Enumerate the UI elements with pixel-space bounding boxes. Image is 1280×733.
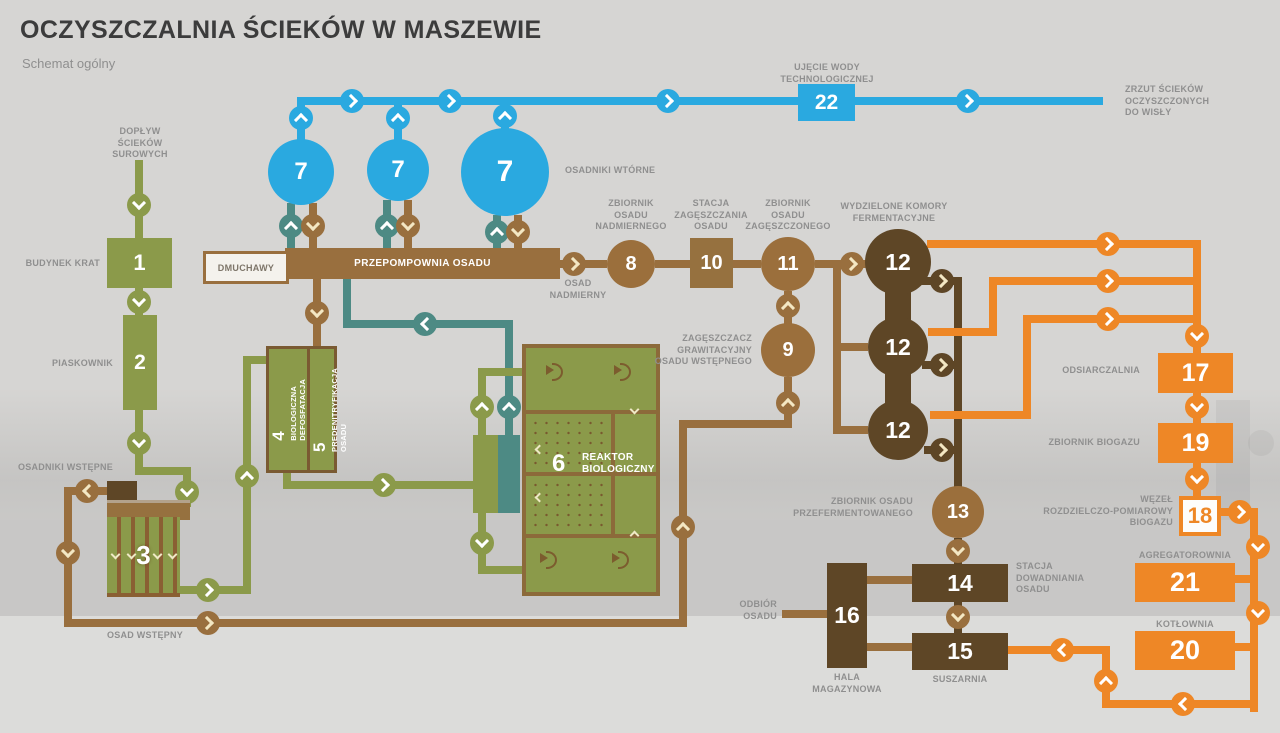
page-title: OCZYSZCZALNIA ŚCIEKÓW W MASZEWIE: [20, 16, 542, 45]
chevron-down-icon: [56, 541, 80, 565]
chevron-left-icon: [532, 443, 544, 455]
chevron-up-icon: [289, 106, 313, 130]
chevron-down-icon: [1246, 601, 1270, 625]
node-osadnik-wtorny-1: 7: [268, 139, 334, 205]
label-osadniki-wtorne: OSADNIKI WTÓRNE: [565, 165, 715, 177]
chevron-down-icon: [946, 605, 970, 629]
chevron-up-icon: [671, 515, 695, 539]
chevron-right-icon: [840, 252, 864, 276]
node-number: 11: [777, 253, 798, 276]
node-number: 9: [782, 339, 793, 362]
fan-icon: [544, 360, 564, 380]
chevron-right-icon: [956, 89, 980, 113]
pipe-orange: [989, 277, 1197, 285]
node-distribution-green: [473, 435, 498, 513]
node-komora-fermentacyjna-3: 12: [868, 400, 928, 460]
pipe-brown: [733, 260, 761, 268]
label-zbiornik-zageszczonego: ZBIORNIKOSADUZAGĘSZCZONEGO: [743, 198, 833, 233]
pipe-blue: [297, 97, 1103, 105]
cell-label: PREDENITRYFIKACJA: [330, 368, 339, 452]
reactor-label: REAKTOR: [582, 452, 633, 463]
node-agregatorownia: 21: [1135, 563, 1235, 602]
label-zbiornik-biogazu: ZBIORNIK BIOGAZU: [1030, 437, 1140, 449]
chevron-up-icon: [235, 464, 259, 488]
node-kotlownia: 20: [1135, 631, 1235, 670]
pipe-brown: [655, 260, 690, 268]
pipe-orange: [930, 411, 1023, 419]
chevron-up-icon: [776, 391, 800, 415]
node-number: 1: [133, 250, 145, 276]
node-osadniki-wstepne-cap: [107, 481, 137, 500]
chevron-down-icon: [1246, 535, 1270, 559]
chevron-down-icon: [1185, 395, 1209, 419]
node-zbiornik-osadu-zageszczonego: 11: [761, 237, 815, 291]
pipe-orange: [989, 277, 997, 336]
node-number: 12: [885, 249, 911, 276]
fan-icon: [610, 548, 630, 568]
label-zageszczacz: ZAGĘSZCZACZGRAWITACYJNYOSADU WSTĘPNEGO: [632, 333, 752, 368]
chevron-down-icon: [127, 193, 151, 217]
node-budynek-krat: 1: [107, 238, 172, 288]
chevron-down-icon: [151, 549, 163, 561]
pipe-brown: [833, 260, 841, 434]
chevron-down-icon: [506, 220, 530, 244]
dmuchawy-label: DMUCHAWY: [218, 263, 274, 273]
pipe-orange: [1235, 575, 1250, 583]
node-defosfatacja-predenitryfikacja: 4BIOLOGICZNADEFOSFATACJA 5PREDENITRYFIKA…: [266, 346, 337, 473]
pipe-green: [478, 566, 526, 574]
node-reaktor-biologiczny: 6 REAKTORBIOLOGICZNY: [522, 344, 660, 596]
pipe-brown: [679, 420, 792, 428]
node-stacja-zageszczania: 10: [690, 238, 733, 288]
label-agregatorownia: AGREGATOROWNIA: [1135, 550, 1235, 562]
chevron-right-icon: [340, 89, 364, 113]
chevron-right-icon: [1228, 500, 1252, 524]
label-zbiornik-nadmiernego: ZBIORNIKOSADUNADMIERNEGO: [591, 198, 671, 233]
chevron-down-icon: [127, 290, 151, 314]
label-hala-magazynowa: HALAMAGAZYNOWA: [797, 672, 897, 695]
node-zbiornik-przefermentowanego: 13: [932, 486, 984, 538]
chevron-up-icon: [279, 214, 303, 238]
chevron-right-icon: [930, 269, 954, 293]
label-doplyw-sciekow: DOPŁYWŚCIEKÓWSUROWYCH: [90, 126, 190, 161]
node-number: 15: [947, 638, 973, 665]
pipe-orange: [928, 328, 989, 336]
label-kotlownia: KOTŁOWNIA: [1135, 619, 1235, 631]
label-zrzut-sciekow: ZRZUT ŚCIEKÓWOCZYSZCZONYCHDO WISŁY: [1125, 84, 1245, 119]
pipe-dark: [954, 277, 962, 490]
label-odbior-osadu: ODBIÓROSADU: [707, 599, 777, 622]
node-number: 4: [269, 379, 289, 441]
chevron-left-icon: [1171, 692, 1195, 716]
chevron-down-icon: [1185, 324, 1209, 348]
chevron-down-icon: [396, 214, 420, 238]
node-number: 2: [134, 351, 146, 375]
node-number: 10: [700, 252, 722, 275]
node-number: 6: [552, 450, 565, 478]
label-piaskownik: PIASKOWNIK: [13, 358, 113, 370]
node-number: 7: [391, 156, 404, 184]
chevron-left-icon: [75, 479, 99, 503]
chevron-up-icon: [628, 528, 640, 540]
node-dmuchawy: DMUCHAWY: [203, 251, 289, 284]
label-budynek-krat: BUDYNEK KRAT: [0, 258, 100, 270]
label-zbiornik-przefermentowanego: ZBIORNIK OSADUPRZEFERMENTOWANEGO: [793, 496, 913, 519]
pipe-brown: [841, 343, 868, 351]
node-number: 18: [1188, 503, 1212, 529]
node-number: 7: [294, 158, 307, 186]
node-number: 12: [885, 417, 911, 444]
node-number: 5: [310, 368, 330, 452]
chevron-right-icon: [930, 438, 954, 462]
node-wezel-pomiarowy: 18: [1179, 496, 1221, 536]
cell-defosfatacja: 4BIOLOGICZNADEFOSFATACJA: [269, 349, 307, 470]
label-stacja-odwadniania: STACJADOWADNIANIAOSADU: [1016, 561, 1111, 596]
node-number: 12: [885, 334, 911, 361]
node-osadnik-wtorny-3: 7: [461, 128, 549, 216]
pipe-brown: [841, 426, 868, 434]
photo-dome: [1248, 430, 1274, 456]
node-ujecie-wody: 22: [798, 84, 855, 121]
cell-label: DEFOSFATACJA: [298, 379, 307, 441]
chevron-right-icon: [372, 473, 396, 497]
reactor-dots: [530, 480, 608, 530]
chevron-down-icon: [470, 531, 494, 555]
label-ujecie-wody: UJĘCIE WODYTECHNOLOGICZNEJ: [767, 62, 887, 85]
node-number: 3: [136, 540, 150, 571]
chevron-right-icon: [438, 89, 462, 113]
chevron-up-icon: [776, 294, 800, 318]
cell-label: BIOLOGICZNA: [289, 379, 298, 441]
node-zbiornik-biogazu: 19: [1158, 423, 1233, 463]
bar-label: PRZEPOMPOWNIA OSADU: [354, 258, 491, 269]
chevron-down-icon: [109, 549, 121, 561]
label-osadniki-wstepne: OSADNIKI WSTĘPNE: [18, 462, 168, 474]
cell-label: OSADU: [339, 368, 348, 452]
cell-predenitryfikacja: 5PREDENITRYFIKACJAOSADU: [307, 349, 348, 470]
chevron-up-icon: [386, 106, 410, 130]
chevron-down-icon: [946, 539, 970, 563]
node-number: 22: [815, 91, 838, 115]
pipe-brown: [64, 619, 687, 627]
node-number: 13: [947, 501, 969, 524]
node-zageszczacz-grawitacyjny: 9: [761, 323, 815, 377]
node-komora-fermentacyjna-2: 12: [868, 317, 928, 377]
node-number: 7: [497, 155, 514, 189]
node-number: 21: [1170, 567, 1200, 598]
chevron-up-icon: [497, 395, 521, 419]
fan-icon: [612, 360, 632, 380]
label-osad-wstepny: OSAD WSTĘPNY: [107, 630, 237, 642]
pipe-orange: [1023, 315, 1031, 419]
chevron-right-icon: [196, 578, 220, 602]
node-piaskownik: 2: [123, 315, 157, 410]
chevron-down-icon: [1185, 467, 1209, 491]
chevron-down-icon: [127, 431, 151, 455]
chevron-right-icon: [1096, 232, 1120, 256]
node-number: 17: [1182, 359, 1210, 388]
node-number: 20: [1170, 635, 1200, 666]
chevron-down-icon: [166, 549, 178, 561]
chevron-right-icon: [1096, 307, 1120, 331]
pipe-orange: [927, 240, 1198, 248]
pipe-brown: [867, 576, 912, 584]
chevron-down-icon: [301, 214, 325, 238]
node-number: 16: [834, 602, 860, 629]
reactor-label: BIOLOGICZNY: [582, 464, 655, 475]
chevron-left-icon: [532, 491, 544, 503]
node-stacja-odwadniania: 14: [912, 564, 1008, 602]
label-wezel-pomiarowy: WĘZEŁROZDZIELCZO-POMIAROWYBIOGAZU: [1038, 494, 1173, 529]
label-suszarnia: SUSZARNIA: [910, 674, 1010, 686]
chevron-left-icon: [1050, 638, 1074, 662]
chevron-right-icon: [1096, 269, 1120, 293]
node-number: 19: [1182, 429, 1210, 458]
chevron-up-icon: [470, 395, 494, 419]
label-stacja-zageszczania: STACJAZAGĘSZCZANIAOSADU: [671, 198, 751, 233]
chevron-right-icon: [930, 353, 954, 377]
node-hala-magazynowa: 16: [827, 563, 867, 668]
pipe-brown: [867, 643, 912, 651]
chevron-down-icon: [628, 404, 640, 416]
page-subtitle: Schemat ogólny: [22, 56, 115, 71]
chevron-right-icon: [562, 252, 586, 276]
label-osad-nadmierny: OSADNADMIERNY: [538, 278, 618, 301]
label-odsiarczalnia: ODSIARCZALNIA: [1040, 365, 1140, 377]
label-komory-fermentacyjne: WYDZIELONE KOMORYFERMENTACYJNE: [828, 201, 960, 224]
pipe-orange: [1235, 643, 1250, 651]
chevron-up-icon: [493, 104, 517, 128]
chevron-left-icon: [413, 312, 437, 336]
chevron-down-icon: [305, 301, 329, 325]
pipe-brown: [782, 610, 829, 618]
node-komora-fermentacyjna-1: 12: [865, 229, 931, 295]
plant-schematic-diagram: OCZYSZCZALNIA ŚCIEKÓW W MASZEWIE Schemat…: [0, 0, 1280, 733]
node-number: 14: [947, 570, 973, 597]
chevron-up-icon: [1094, 669, 1118, 693]
node-distribution-teal: [498, 435, 520, 513]
node-suszarnia: 15: [912, 633, 1008, 670]
node-przepompownia-osadu: PRZEPOMPOWNIA OSADU: [285, 248, 560, 279]
node-odsiarczalnia: 17: [1158, 353, 1233, 393]
node-osadnik-wtorny-2: 7: [367, 139, 429, 201]
node-osadniki-wstepne-tank: 3: [107, 517, 180, 597]
node-number: 8: [625, 253, 636, 276]
fan-icon: [538, 548, 558, 568]
chevron-right-icon: [656, 89, 680, 113]
